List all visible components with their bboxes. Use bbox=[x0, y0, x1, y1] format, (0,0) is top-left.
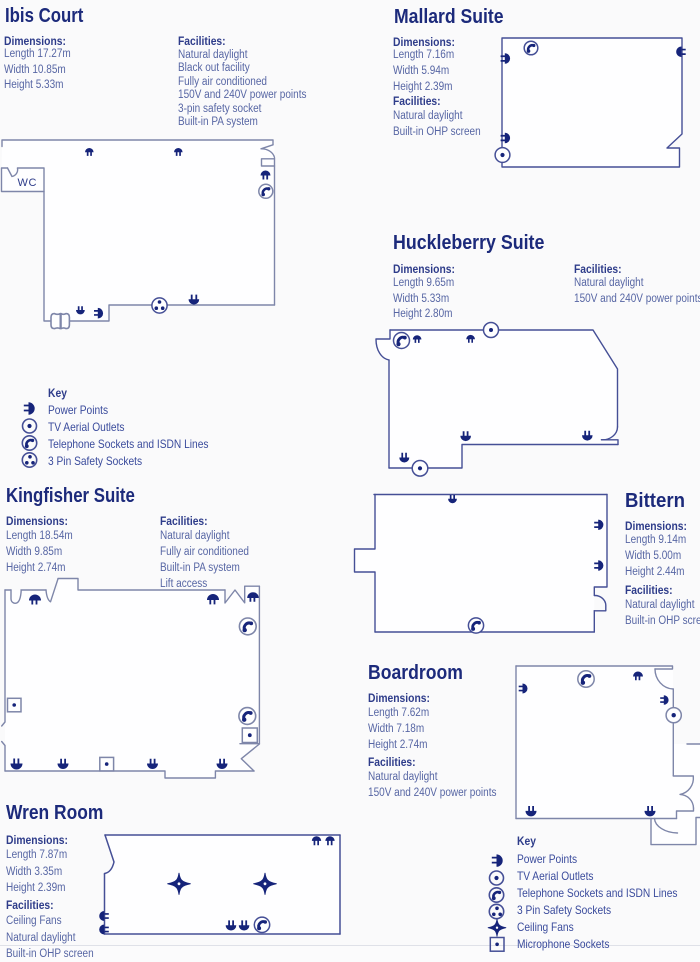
svg-text:WC: WC bbox=[18, 177, 38, 189]
